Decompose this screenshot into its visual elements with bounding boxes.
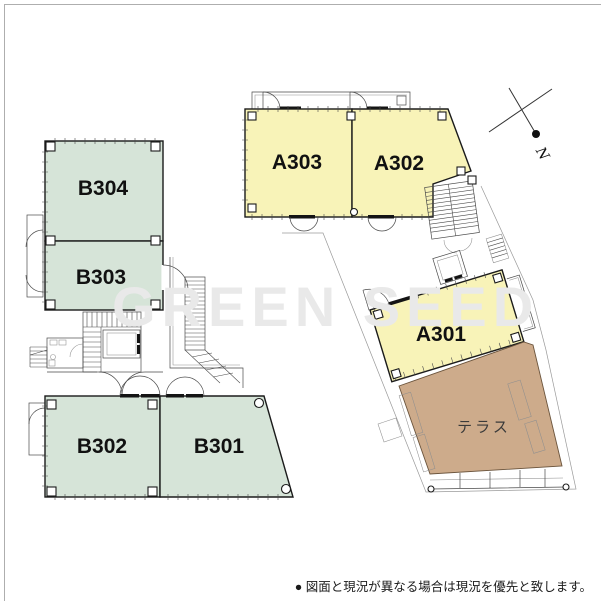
room-b304-label: B304: [78, 177, 129, 200]
a302-door-bar: [368, 215, 394, 219]
hall-double-door-arcs: [99, 372, 145, 395]
a302-door-arcs: [368, 217, 396, 231]
terrace-step: [378, 418, 402, 442]
floor-plan-canvas: B304 B303 B302 B301 A303 A302: [0, 0, 601, 601]
toilet-fixture2: [59, 340, 66, 345]
a303-door-arcs: [290, 217, 318, 231]
disclaimer-note: ● 図面と現況が異なる場合は現況を優先と致します。: [295, 579, 592, 594]
balcony-a-door-arcs: [263, 92, 367, 109]
toilet-fixture4: [49, 360, 55, 366]
b302-door-bar2: [141, 394, 160, 398]
room-a303-label: A303: [272, 151, 322, 174]
room-b301-label: B301: [194, 435, 245, 458]
railing-post: [428, 486, 434, 492]
room-b302-label: B302: [77, 435, 127, 458]
floor-plan-page: B304 B303 B302 B301 A303 A302: [0, 0, 601, 601]
room-a302-label: A302: [374, 152, 424, 175]
north-arrow: [489, 88, 552, 134]
b302-door-arcs: [120, 376, 160, 396]
b302-door-bar: [120, 394, 139, 398]
b301-door-arcs: [166, 377, 204, 396]
north-label: N: [532, 144, 553, 164]
balcony-a-box: [397, 96, 406, 105]
toilet-door-arc: [70, 344, 83, 357]
a303-door-bar: [289, 215, 315, 219]
b-side-stair: [30, 347, 47, 367]
toilet-room: [47, 338, 83, 368]
balcony-b302: [29, 403, 45, 455]
b301-door-bar2: [186, 394, 203, 398]
escape-stair-lower: [185, 350, 240, 383]
a-side-stair: [486, 234, 509, 263]
toilet-fixture: [50, 340, 57, 345]
balcony-a-top: [252, 92, 410, 109]
railing-post2: [563, 484, 569, 490]
b301-door-bar: [166, 394, 184, 398]
toilet-fixture3: [51, 355, 56, 360]
elevator-b-door2: [137, 345, 140, 354]
a-stair-pillar: [468, 176, 476, 184]
north-dot: [532, 130, 540, 138]
balcony-b-left-door-arcs: [26, 230, 43, 292]
terrace-label: テラス: [457, 419, 511, 436]
watermark: GREEN SEED: [112, 275, 539, 338]
compass: N: [489, 88, 552, 164]
terrace-deck-line: [430, 478, 563, 480]
